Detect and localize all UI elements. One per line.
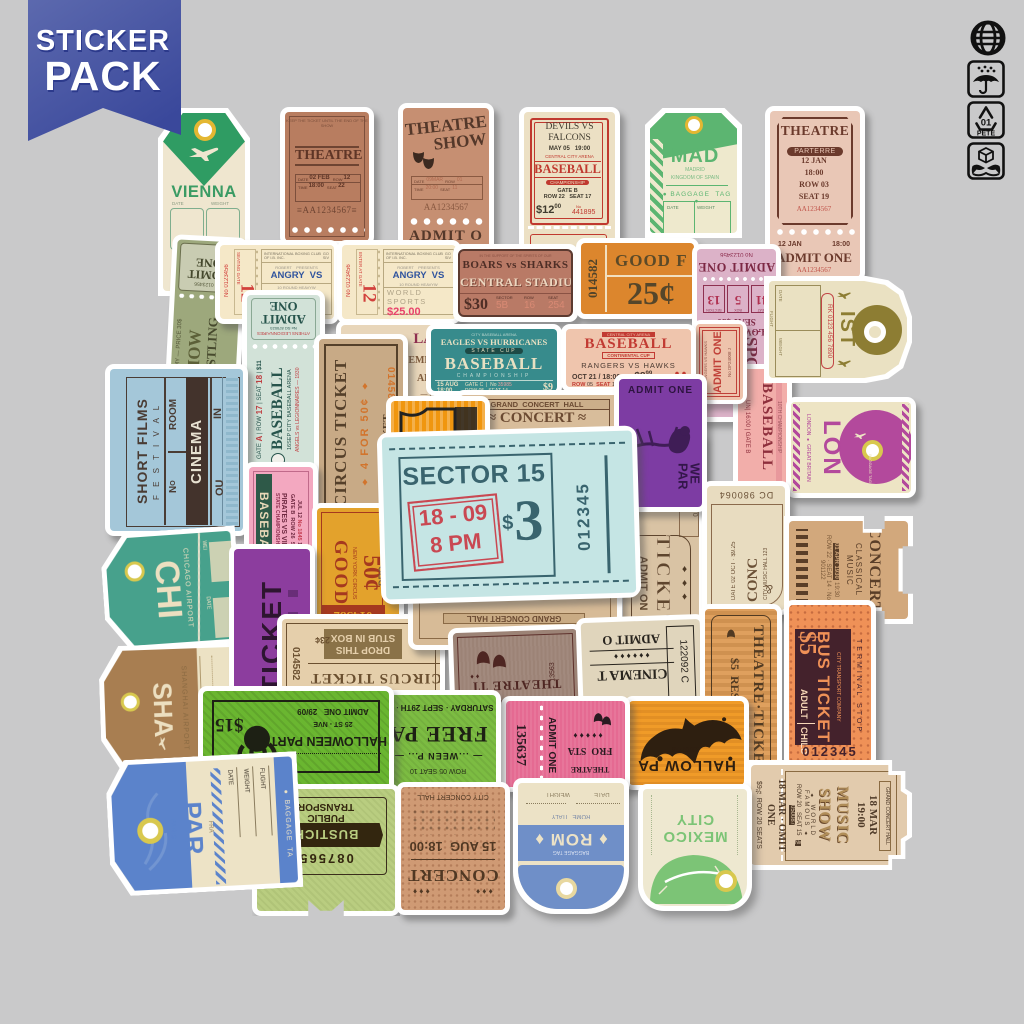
svg-text:01: 01 <box>981 118 992 129</box>
svg-text:PETE: PETE <box>977 131 996 138</box>
svg-text:PACK: PACK <box>44 53 161 99</box>
